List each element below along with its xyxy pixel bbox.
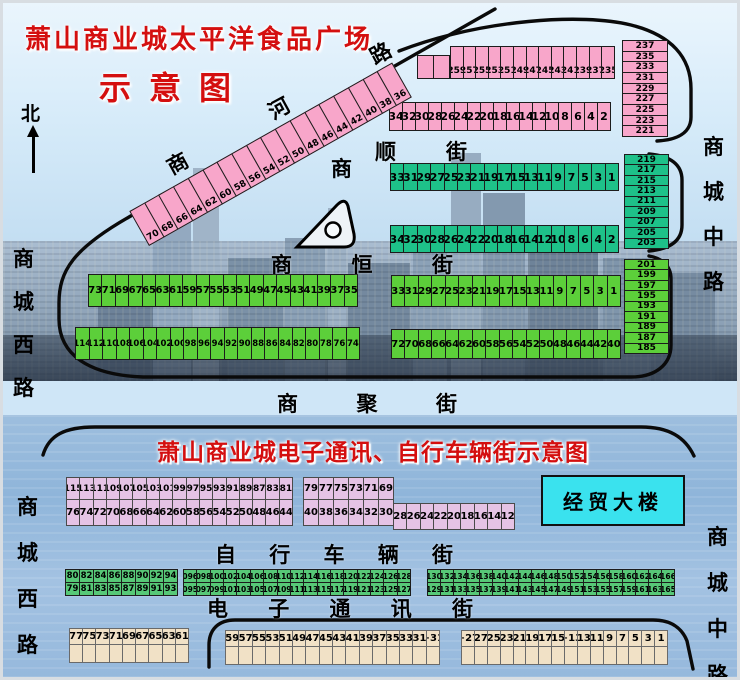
stall-cell: 67	[128, 274, 142, 307]
stall-cell: 73	[88, 274, 102, 307]
stall-cell: 25	[487, 630, 501, 647]
road-label-char: 西	[17, 583, 38, 613]
stall-cell: 46	[265, 499, 279, 526]
stall-cell: 16	[506, 102, 520, 131]
stall-row-59-31: 595755535149474543413937353331+31	[225, 630, 440, 647]
market-map-canvas: 萧山商业城太平洋食品广场 示意图 萧山商业城电子通讯、自行车辆街示意图 北 商城…	[0, 0, 740, 680]
stall-cell: 19	[525, 630, 539, 647]
stall-cell: 70	[404, 329, 418, 359]
stall-cell: 136	[466, 569, 480, 583]
stall-cell: 59	[225, 630, 239, 647]
stall-cell: 72	[93, 499, 107, 526]
stall-cell: 71	[363, 477, 379, 500]
stall-cell	[345, 646, 359, 665]
road-label-char: 城	[703, 176, 724, 206]
stall-cell: 87	[121, 582, 136, 596]
stall-cell: 66	[431, 329, 445, 359]
street-shun: 顺街	[375, 136, 467, 166]
main-title: 萧山商业城太平洋食品广场	[25, 19, 373, 56]
stall-cell: 86	[107, 569, 122, 583]
stall-cell: 91	[226, 477, 240, 500]
stall-cell: 70	[106, 499, 120, 526]
stall-cell	[95, 644, 109, 663]
stall-cell: 27	[430, 163, 444, 191]
stall-cell: 14	[487, 503, 501, 530]
road-label-char: 路	[707, 659, 728, 680]
stall-cell: 54	[212, 499, 226, 526]
stall-row-28-12: 282624222018161412	[393, 503, 515, 530]
stall-cell: 23	[500, 630, 514, 647]
stall-cell: 93	[212, 477, 226, 500]
stall-cell: 095	[183, 582, 197, 596]
stall-cell: 132	[440, 569, 454, 583]
stall-cell: 42	[593, 329, 607, 359]
stall-cell: 28	[428, 102, 442, 131]
stall-cell	[500, 646, 514, 665]
stall-cell: 22	[470, 225, 484, 253]
stall-cell: 23	[458, 275, 472, 307]
stall-cell: 156	[596, 569, 610, 583]
jingmao-building: 经贸大楼	[541, 475, 685, 526]
stall-cell: +31	[426, 630, 440, 647]
stall-cell: 14	[519, 102, 533, 131]
stall-cell: 105	[132, 477, 146, 500]
stall-cell: 62	[458, 329, 472, 359]
road-label-char: 中	[703, 221, 724, 251]
stall-cell: 77	[318, 477, 334, 500]
road-label-char: 讯	[391, 593, 412, 623]
road-label-char: 自	[215, 539, 236, 569]
stall-row-79-69: 797775737169	[303, 477, 394, 500]
stall-cell: 29	[418, 275, 432, 307]
stall-cell: 81	[279, 477, 293, 500]
stall-cell: 116	[317, 569, 331, 583]
stall-cell	[82, 644, 96, 663]
stall-row-blank-left	[69, 644, 189, 663]
stall-cell	[487, 646, 501, 665]
stall-cell: 68	[119, 499, 133, 526]
stall-cell: 104	[143, 327, 158, 360]
road-label-char: 路	[703, 266, 724, 296]
stall-cell: 164	[648, 569, 662, 583]
stall-cell: 41	[345, 630, 359, 647]
stall-cell: 36	[333, 499, 349, 526]
stall-cell	[162, 644, 176, 663]
stall-cell	[386, 646, 400, 665]
stall-cell: 24	[454, 102, 468, 131]
stall-cell: 9	[603, 630, 617, 647]
stall-cell: 120	[343, 569, 357, 583]
stall-cell: 68	[418, 329, 432, 359]
stall-cell: 12	[501, 503, 515, 530]
stall-cell: 56	[199, 499, 213, 526]
stall-cell: 40	[303, 499, 319, 526]
stall-cell: 91	[149, 582, 164, 596]
stall-cell: 4	[584, 102, 598, 131]
stall-cell: 26	[406, 503, 420, 530]
road-label-char: 街	[436, 388, 457, 418]
stall-cell: 32	[402, 102, 416, 131]
stall-cell: 53	[265, 630, 279, 647]
stall-cell	[641, 646, 655, 665]
stall-row-77-61: 777573716967656361	[69, 628, 189, 645]
stall-cell: 93	[163, 582, 178, 596]
stall-cell: 241	[563, 46, 577, 79]
stall-cell: 69	[115, 274, 129, 307]
road-label-char: 西	[13, 329, 34, 359]
stall-cell: 161	[635, 582, 649, 596]
stall-cell: 48	[252, 499, 266, 526]
stall-cell: 45	[319, 630, 333, 647]
stall-cell: 9	[551, 163, 565, 191]
stall-cell: 73	[348, 477, 364, 500]
stall-cell: 27	[431, 275, 445, 307]
stall-cell: 65	[142, 274, 156, 307]
stall-cell: 20	[480, 102, 494, 131]
stall-cell: 62	[159, 499, 173, 526]
stall-row-80-94: 8082848688909294	[65, 569, 178, 583]
stall-cell	[461, 646, 475, 665]
stall-cell: 71	[109, 628, 123, 645]
stall-cell: 74	[346, 327, 361, 360]
stall-cell: 115	[66, 477, 80, 500]
stall-cell: 43	[332, 630, 346, 647]
stall-cell: 118	[330, 569, 344, 583]
stall-cell: 5	[580, 275, 594, 307]
stall-cell: 104	[236, 569, 250, 583]
stall-cell: 82	[79, 569, 94, 583]
stall-cell: 69	[122, 628, 136, 645]
stall-cell: 65	[148, 628, 162, 645]
road-label-char: 恒	[352, 249, 373, 279]
stall-row-096-128: 0960981001021041061081101121141161181201…	[183, 569, 411, 583]
stall-cell: 30	[415, 102, 429, 131]
stall-cell: 34	[348, 499, 364, 526]
stall-col-237-221: 237235233231229227225223221	[622, 40, 668, 137]
stall-cell: 87	[252, 477, 266, 500]
stall-cell: 11	[539, 275, 553, 307]
stall-cell: 102	[223, 569, 237, 583]
stall-cell: 75	[82, 628, 96, 645]
stall-cell: 74	[79, 499, 93, 526]
road-label-char: 行	[269, 539, 290, 569]
stall-cell: 128	[397, 569, 411, 583]
stall-cell: 18	[460, 503, 474, 530]
stall-cell: 098	[196, 569, 210, 583]
stall-cell: 12	[537, 225, 551, 253]
stall-cell: 50	[239, 499, 253, 526]
stall-cell: 239	[576, 46, 590, 79]
stall-cell: 76	[332, 327, 347, 360]
stall-cell: 22	[467, 102, 481, 131]
stall-cell: 63	[162, 628, 176, 645]
stall-cell: 33	[399, 630, 413, 647]
stall-cell: +27	[461, 630, 475, 647]
stall-cell	[616, 646, 630, 665]
stall-cell: 137	[479, 582, 493, 596]
stall-cell: 16	[511, 225, 525, 253]
stall-cell	[305, 646, 319, 665]
stall-cell: 94	[210, 327, 225, 360]
stall-cell: 51	[236, 274, 250, 307]
stall-cell: 101	[159, 477, 173, 500]
stall-cell: 23	[457, 163, 471, 191]
road-label-char: 城	[17, 537, 38, 567]
north-arrow	[32, 135, 35, 173]
road-label-char: 街	[432, 539, 453, 569]
stall-cell: 124	[370, 569, 384, 583]
stall-cell: 157	[609, 582, 623, 596]
stall-cell: 1	[605, 163, 619, 191]
stall-cell: 79	[303, 477, 319, 500]
stall-cell: 259	[450, 46, 464, 79]
stall-cell: 44	[580, 329, 594, 359]
stall-cell: 130	[427, 569, 441, 583]
stall-cell: 25	[444, 163, 458, 191]
stall-cell: 106	[250, 569, 264, 583]
stall-cell: 2	[605, 225, 619, 253]
stall-cell: 235	[601, 46, 615, 79]
stall-cell	[265, 646, 279, 665]
stall-cell	[551, 646, 565, 665]
stall-cell: 19	[485, 275, 499, 307]
stall-cell: 114	[75, 327, 90, 360]
road-label-char: 城	[13, 286, 34, 316]
stall-cell: 66	[132, 499, 146, 526]
stall-cell: 243	[551, 46, 565, 79]
stall-cell: 18	[497, 225, 511, 253]
road-label-char: 城	[707, 567, 728, 597]
road-label-char: 街	[432, 249, 453, 279]
stall-cell: 44	[279, 499, 293, 526]
stall-cell	[319, 646, 333, 665]
stall-cell: 81	[79, 582, 94, 596]
stall-cell: 80	[305, 327, 320, 360]
stall-cell: 89	[239, 477, 253, 500]
stall-cell: 100	[170, 327, 185, 360]
road-label-char: 商	[707, 521, 728, 551]
stall-cell: 38	[318, 499, 334, 526]
stall-cell: 257	[463, 46, 477, 79]
stall-cell: 98	[183, 327, 198, 360]
stall-cell: 7	[566, 275, 580, 307]
stall-cell: 31	[412, 630, 426, 647]
stall-cell: 88	[251, 327, 266, 360]
stall-cell	[564, 646, 578, 665]
stall-cell: 17	[497, 163, 511, 191]
stall-cell: 78	[319, 327, 334, 360]
stall-cell	[148, 644, 162, 663]
stall-cell: 58	[186, 499, 200, 526]
stall-cell: 82	[292, 327, 307, 360]
road-label-char: 子	[268, 593, 289, 623]
stall-cell: 64	[146, 499, 160, 526]
street-elec: 电子通讯街	[207, 593, 473, 623]
stall-cell: 21	[513, 630, 527, 647]
stall-cell: 17	[499, 275, 513, 307]
stall-cell: 109	[106, 477, 120, 500]
stall-cell: 26	[441, 102, 455, 131]
stall-cell	[122, 644, 136, 663]
stall-cell: 8	[564, 225, 578, 253]
stall-cell: 92	[224, 327, 239, 360]
stall-cell: 60	[472, 329, 486, 359]
stall-cell: 17	[538, 630, 552, 647]
stall-cell	[359, 646, 373, 665]
stall-cell: 141	[505, 582, 519, 596]
stall-cell: 92	[149, 569, 164, 583]
stall-cell	[538, 646, 552, 665]
stall-cell: 13	[526, 275, 540, 307]
stall-cell: 163	[648, 582, 662, 596]
stall-row-114-74: 1141121101081061041021009896949290888684…	[75, 327, 360, 360]
stall-cell: 57	[238, 630, 252, 647]
stall-cell: 72	[391, 329, 405, 359]
stall-cell: 10	[545, 102, 559, 131]
stall-cell	[603, 646, 617, 665]
stall-cell: 16	[474, 503, 488, 530]
stall-cell: 51	[279, 630, 293, 647]
stall-cell: 149	[557, 582, 571, 596]
stall-cell: 126	[383, 569, 397, 583]
stall-cell: 35	[386, 630, 400, 647]
stall-cell: 134	[453, 569, 467, 583]
stall-cell	[654, 646, 668, 665]
stall-cell: 67	[135, 628, 149, 645]
stall-cell: 73	[95, 628, 109, 645]
stall-cell: 39	[359, 630, 373, 647]
stall-cell: 112	[89, 327, 104, 360]
stall-cell	[417, 55, 434, 79]
stall-cell: 162	[635, 569, 649, 583]
stall-cell: 138	[479, 569, 493, 583]
stall-row-76-44: 7674727068666462605856545250484644	[66, 499, 293, 526]
stall-cell: 221	[622, 125, 668, 137]
stall-cell: 145	[531, 582, 545, 596]
stall-cell: 31	[404, 275, 418, 307]
stall-cell: 144	[518, 569, 532, 583]
stall-cell: 159	[622, 582, 636, 596]
stall-cell: 110	[277, 569, 291, 583]
stall-cell: 20	[447, 503, 461, 530]
stall-cell: 249	[513, 46, 527, 79]
stall-cell: 185	[624, 343, 669, 354]
stall-cell: 143	[518, 582, 532, 596]
stall-row-blank-mid	[225, 646, 440, 665]
stall-cell: 8	[558, 102, 572, 131]
stall-cell	[135, 644, 149, 663]
stall-row-27-1: +2727252321191715+13131197531	[461, 630, 668, 647]
stall-cell: 2	[597, 102, 611, 131]
stall-cell: 50	[539, 329, 553, 359]
road-label-char: 顺	[375, 136, 396, 166]
stall-cell: 30	[378, 499, 394, 526]
stall-cell: 80	[65, 569, 80, 583]
stall-cell	[279, 646, 293, 665]
stall-row-34-2-pink: 343230282624222018161412108642	[389, 102, 611, 131]
stall-cell: 1	[607, 275, 621, 307]
road-label-char: 路	[17, 629, 38, 659]
stall-cell: 255	[475, 46, 489, 79]
stall-cell: 90	[135, 569, 150, 583]
stall-row-72-40: 7270686664626058565452504846444240	[391, 329, 621, 359]
stall-cell	[513, 646, 527, 665]
stall-cell: 55	[209, 274, 223, 307]
stall-cell: 13	[577, 630, 591, 647]
stall-cell: 86	[264, 327, 279, 360]
stall-cell: 69	[378, 477, 394, 500]
stall-cell: 114	[303, 569, 317, 583]
stall-cell: 79	[65, 582, 80, 596]
stall-cell: 85	[107, 582, 122, 596]
stall-cell: 102	[156, 327, 171, 360]
stall-cell: 52	[526, 329, 540, 359]
stall-cell: 83	[265, 477, 279, 500]
road-label-char: 车	[324, 539, 345, 569]
stall-cell: 37	[372, 630, 386, 647]
stall-col-219-203: 219217215213211209207205203	[624, 154, 669, 249]
street-heng: 商恒街	[271, 249, 453, 279]
stall-cell: 7	[616, 630, 630, 647]
stall-row-115-81: 1151131111091071051031019997959391898783…	[66, 477, 293, 500]
stall-cell: 5	[628, 630, 642, 647]
north-arrow-head	[27, 125, 39, 137]
landmark-triangle	[297, 201, 354, 247]
road-west-top: 商城西路	[13, 243, 34, 402]
stall-row-blank	[417, 55, 450, 79]
stall-cell	[628, 646, 642, 665]
stall-cell: 22	[433, 503, 447, 530]
stall-cell: 47	[305, 630, 319, 647]
stall-cell	[372, 646, 386, 665]
stall-cell	[474, 646, 488, 665]
stall-cell	[426, 646, 440, 665]
road-label-char: 商	[13, 243, 34, 273]
north-label: 北	[21, 99, 40, 126]
stall-cell	[109, 644, 123, 663]
stall-cell: 155	[596, 582, 610, 596]
stall-row-33-1-green: 33312927252321191715131197531	[391, 275, 621, 307]
stall-row-79-93: 7981838587899193	[65, 582, 178, 596]
stall-cell: 52	[226, 499, 240, 526]
road-label-char: 街	[452, 593, 473, 623]
street-ju: 商聚街	[277, 388, 457, 418]
stall-cell: 152	[570, 569, 584, 583]
stall-cell: 95	[199, 477, 213, 500]
stall-cell: 111	[93, 477, 107, 500]
stall-cell: 112	[290, 569, 304, 583]
stall-row-130-166: 1301321341361381401421441461481501521541…	[427, 569, 675, 583]
stall-cell: 24	[457, 225, 471, 253]
stall-cell: 48	[553, 329, 567, 359]
stall-cell: 106	[129, 327, 144, 360]
stall-cell: 64	[445, 329, 459, 359]
stall-cell	[252, 646, 266, 665]
road-west-bottom: 商城西路	[17, 491, 38, 659]
stall-cell: 88	[121, 569, 136, 583]
street-shun-prefix: 商	[331, 153, 352, 183]
road-label-char: 商	[271, 249, 292, 279]
stall-cell: 90	[237, 327, 252, 360]
stall-cell: 96	[197, 327, 212, 360]
stall-cell: 113	[79, 477, 93, 500]
stall-row-blank-right	[461, 646, 668, 665]
stall-cell: 15	[512, 275, 526, 307]
stall-cell: 9	[553, 275, 567, 307]
stall-cell: 20	[484, 225, 498, 253]
stall-cell: 57	[196, 274, 210, 307]
stall-cell: 096	[183, 569, 197, 583]
